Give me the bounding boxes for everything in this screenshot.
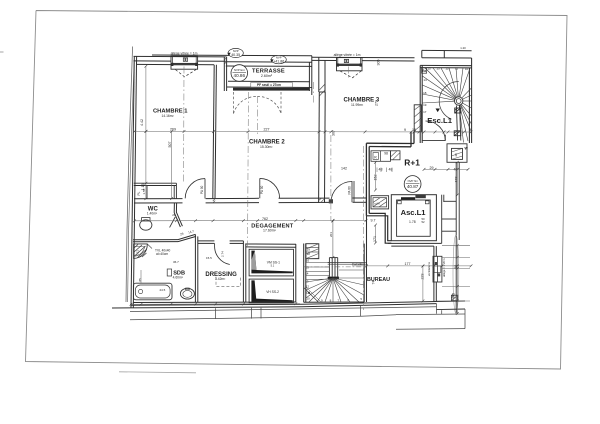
svg-text:R+1: R+1 <box>404 157 420 167</box>
svg-text:40.86: 40.86 <box>234 73 246 78</box>
svg-text:16: 16 <box>412 128 416 132</box>
svg-text:10: 10 <box>306 296 310 300</box>
svg-text:4.42: 4.42 <box>140 119 144 126</box>
svg-text:2.60m²: 2.60m² <box>261 74 273 78</box>
svg-text:9.7: 9.7 <box>371 218 376 222</box>
svg-text:40.87: 40.87 <box>407 184 419 189</box>
svg-text:85: 85 <box>138 278 142 282</box>
svg-text:15.5: 15.5 <box>206 256 212 260</box>
svg-text:allège = 1.20m: allège = 1.20m <box>442 258 446 277</box>
svg-text:9: 9 <box>404 128 406 132</box>
svg-text:13: 13 <box>305 279 309 283</box>
svg-text:Esc.L1: Esc.L1 <box>427 116 453 125</box>
svg-text:PA 90: PA 90 <box>260 186 264 194</box>
svg-text:4.60m²: 4.60m² <box>173 275 184 279</box>
svg-text:18: 18 <box>423 91 427 95</box>
svg-text:1.21: 1.21 <box>136 250 140 256</box>
svg-text:52: 52 <box>422 220 426 224</box>
svg-text:uAh: uAh <box>375 202 381 206</box>
svg-text:14: 14 <box>423 78 427 82</box>
svg-text:14: 14 <box>305 271 309 275</box>
svg-text:171: 171 <box>373 236 377 242</box>
svg-text:Ea: Ea <box>422 69 426 73</box>
svg-text:11: 11 <box>307 291 310 295</box>
svg-text:11: 11 <box>455 67 458 71</box>
svg-text:19: 19 <box>423 103 427 107</box>
svg-text:15.30m²: 15.30m² <box>260 145 273 149</box>
svg-text:15: 15 <box>427 66 431 70</box>
svg-text:15: 15 <box>305 265 309 269</box>
svg-text:48: 48 <box>379 168 383 172</box>
svg-text:17: 17 <box>423 110 427 114</box>
svg-text:PL: PL <box>137 191 141 195</box>
svg-text:12: 12 <box>445 67 449 71</box>
svg-text:1.78: 1.78 <box>409 220 416 224</box>
svg-text:1.40m²: 1.40m² <box>147 212 158 216</box>
svg-text:16: 16 <box>306 258 310 262</box>
svg-text:19: 19 <box>307 248 311 252</box>
svg-text:10: 10 <box>465 67 469 71</box>
svg-text:ventilations: ventilations <box>427 261 431 276</box>
svg-text:305: 305 <box>376 60 380 66</box>
svg-text:177: 177 <box>405 262 411 266</box>
svg-text:NVP Ext: NVP Ext <box>234 68 245 72</box>
svg-text:13: 13 <box>436 67 440 71</box>
svg-text:NVP fini: NVP fini <box>408 179 418 183</box>
svg-text:271: 271 <box>375 100 379 106</box>
svg-text:269: 269 <box>170 128 176 132</box>
svg-text:223: 223 <box>420 274 424 280</box>
svg-text:175: 175 <box>452 293 456 299</box>
svg-text:18: 18 <box>307 252 311 256</box>
svg-text:142: 142 <box>341 166 347 170</box>
svg-text:3.42m²: 3.42m² <box>215 277 226 281</box>
svg-text:24.5: 24.5 <box>160 288 166 292</box>
svg-text:al=40cm: al=40cm <box>156 252 168 256</box>
svg-text:Asc.L1: Asc.L1 <box>401 208 427 217</box>
svg-text:74: 74 <box>372 281 376 285</box>
svg-text:17.60m²: 17.60m² <box>263 229 277 233</box>
svg-text:VH SS-2: VH SS-2 <box>266 290 279 294</box>
svg-text:172: 172 <box>454 177 458 183</box>
svg-text:26: 26 <box>172 213 176 217</box>
svg-text:allège vitrée = 1m: allège vitrée = 1m <box>334 53 361 57</box>
svg-text:12: 12 <box>306 285 310 289</box>
svg-text:36.7: 36.7 <box>173 260 179 264</box>
svg-text:227: 227 <box>264 128 270 132</box>
svg-text:PA 90: PA 90 <box>200 186 204 194</box>
svg-text:PF seuil = 27cm: PF seuil = 27cm <box>257 83 281 87</box>
svg-text:+41.86: +41.86 <box>273 60 284 64</box>
svg-text:14.16m²: 14.16m² <box>162 114 175 118</box>
svg-text:26: 26 <box>454 153 458 157</box>
svg-text:1.20: 1.20 <box>460 46 466 50</box>
svg-text:2.74: 2.74 <box>221 251 225 257</box>
svg-text:201: 201 <box>329 232 333 237</box>
svg-text:Prof=260: Prof=260 <box>352 262 363 266</box>
svg-text:1.15: 1.15 <box>141 184 145 191</box>
svg-text:762: 762 <box>262 217 268 221</box>
svg-text:BUREAU: BUREAU <box>367 277 390 283</box>
svg-text:40.35: 40.35 <box>231 53 240 57</box>
svg-text:507: 507 <box>168 142 172 148</box>
svg-text:5.1: 5.1 <box>271 263 275 267</box>
svg-text:11.99m²: 11.99m² <box>351 103 364 107</box>
svg-text:PA 80: PA 80 <box>348 186 352 194</box>
svg-text:98: 98 <box>384 152 388 156</box>
